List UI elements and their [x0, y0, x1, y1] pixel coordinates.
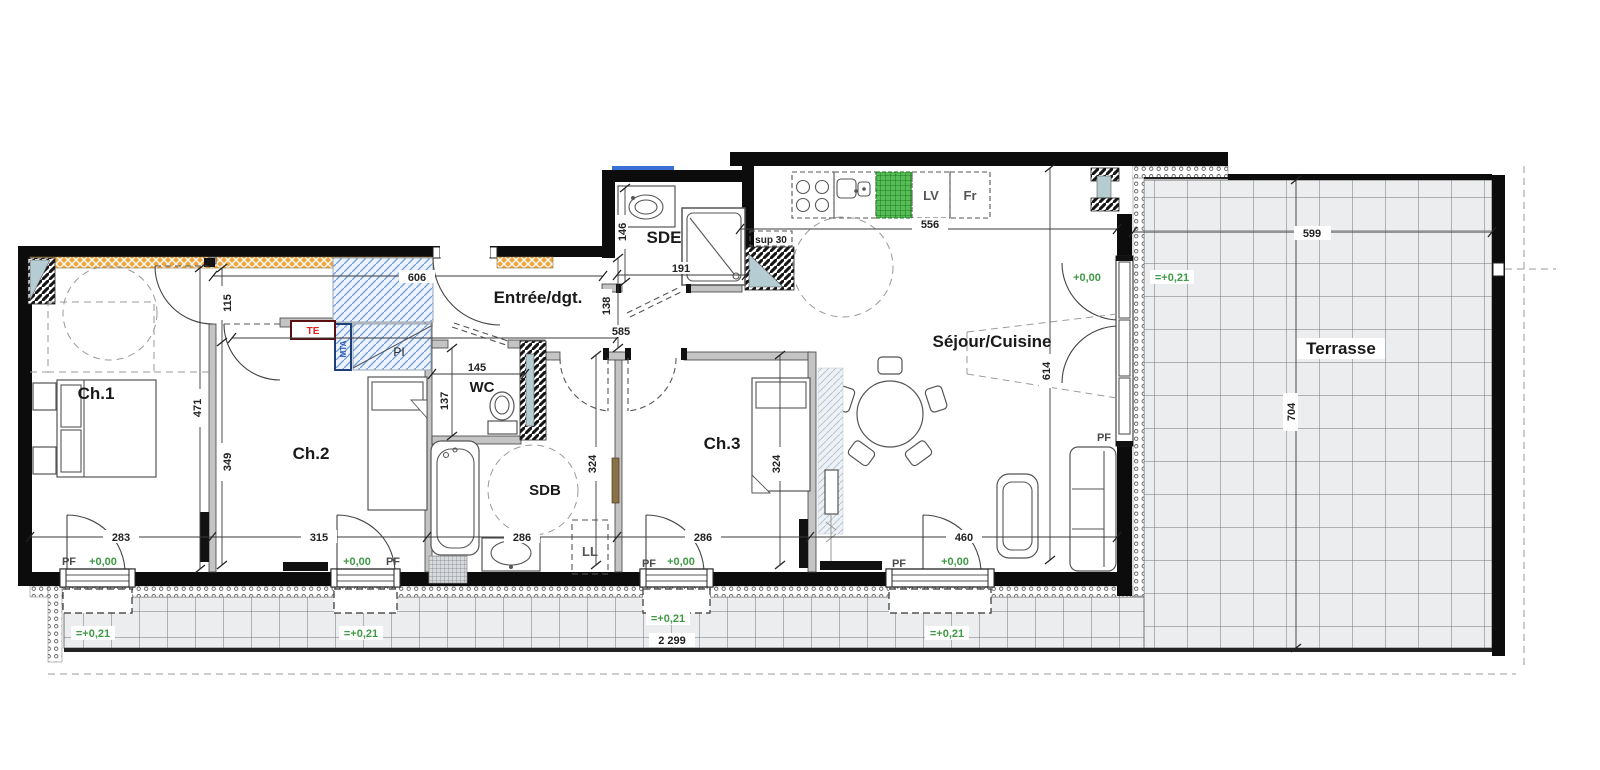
insulation-dots-right-column [1133, 178, 1144, 596]
sejour-wall-strip [818, 368, 843, 562]
pf-ch1: PF [62, 556, 76, 568]
entry-door-jamb-right [490, 247, 497, 258]
corner-window-detail-topleft [28, 258, 55, 304]
technical-shaft [520, 341, 546, 440]
window-ch3 [640, 569, 713, 613]
dim-ch2-width: 315 [310, 532, 328, 544]
level-terrace-door: +0,00 [1073, 272, 1101, 284]
level-ch1: +0,00 [89, 556, 117, 568]
floor-plan-page: Ch.1 Ch.2 Ch.3 WC SDB SDE Entrée/dgt. Sé… [0, 0, 1600, 770]
kitchen-green-unit [876, 172, 912, 218]
dining-table [832, 357, 948, 467]
room-label-sejour: Séjour/Cuisine [932, 332, 1051, 351]
dim-ch3-depth: 324 [771, 454, 783, 473]
dim-sejour-depth: 614 [1041, 361, 1053, 380]
terrace-access-box [1493, 263, 1504, 276]
closet-pi [353, 324, 431, 370]
level-sejour: +0,00 [941, 556, 969, 568]
dim-wc-width: 145 [468, 362, 486, 374]
level-terrace: =+0,21 [1155, 272, 1189, 284]
label-pi: PI [393, 345, 404, 359]
dim-sejour-width: 460 [955, 532, 973, 544]
entry-door-opening [440, 246, 490, 257]
pf-ch2: PF [386, 556, 400, 568]
label-lv: LV [923, 188, 939, 203]
pf-ch3: PF [642, 558, 656, 570]
dim-terrace-width: 599 [1303, 228, 1321, 240]
dim-hall-width: 115 [222, 294, 234, 312]
level-ch2: +0,00 [343, 556, 371, 568]
pf-terrace-door: PF [1097, 432, 1111, 444]
level-balcony-4: =+0,21 [930, 628, 964, 640]
room-label-entree: Entrée/dgt. [494, 288, 583, 307]
level-balcony-1: =+0,21 [76, 628, 110, 640]
insulation-dots-left-column [48, 586, 62, 662]
dim-entry-depth: 138 [601, 297, 613, 315]
room-label-sdb: SDB [529, 482, 561, 499]
dim-hall-length: 606 [408, 272, 426, 284]
pf-sejour: PF [892, 558, 906, 570]
window-ch1 [60, 569, 135, 613]
dim-ch3-width: 286 [694, 532, 712, 544]
kitchen-hob [792, 172, 834, 218]
terrace-tiles [1144, 180, 1492, 648]
level-balcony-2: =+0,21 [344, 628, 378, 640]
entry-door-jamb-left [433, 247, 440, 258]
door-jambs [603, 284, 691, 360]
room-label-ch3: Ch.3 [704, 434, 741, 453]
label-sup30: sup 30 [755, 235, 787, 246]
room-label-wc: WC [470, 379, 495, 396]
room-label-ch2: Ch.2 [293, 444, 330, 463]
label-mta: MTA [339, 340, 348, 357]
kitchen-sink-unit [834, 172, 876, 218]
window-detail-right-wall [1091, 166, 1132, 214]
dim-sde-length: 191 [672, 263, 690, 275]
room-label-ch1: Ch.1 [78, 384, 115, 403]
dim-sde-width-v: 146 [617, 223, 629, 241]
wc-toilet [488, 392, 517, 434]
room-label-sde: SDE [647, 228, 682, 247]
dim-sdb-depth: 324 [587, 454, 599, 473]
label-section-b: B [207, 259, 213, 268]
label-te: TE [307, 326, 320, 337]
floor-plan-canvas: Ch.1 Ch.2 Ch.3 WC SDB SDE Entrée/dgt. Sé… [0, 0, 1600, 770]
insulation-dots-terrace-top [1132, 166, 1228, 178]
dim-ch1-width: 283 [112, 532, 130, 544]
sofa [1070, 447, 1116, 571]
dim-terrace-depth: 704 [1286, 402, 1298, 421]
dim-total-width: 2 299 [658, 635, 686, 647]
room-label-terrasse: Terrasse [1306, 339, 1376, 358]
dim-wc-depth: 137 [439, 392, 451, 410]
dim-ch1-depth: 471 [192, 399, 204, 417]
sdb-mat [429, 556, 467, 583]
dim-sdb-width: 286 [513, 532, 531, 544]
dim-ch1-inner: 349 [222, 453, 234, 471]
terrace-top-edge [1228, 174, 1492, 180]
label-fr: Fr [964, 188, 977, 203]
sde-blue-lintel [612, 166, 674, 170]
level-ch3: +0,00 [667, 556, 695, 568]
dim-kitchen-length: 556 [921, 219, 939, 231]
level-balcony-3: =+0,21 [651, 613, 685, 625]
ch2-bed [368, 377, 427, 510]
window-sejour [886, 569, 994, 613]
lounge-chair [997, 474, 1038, 558]
french-door-terrace [1116, 256, 1133, 446]
ch1-dashed-zone [48, 302, 154, 372]
balcony-railing [64, 648, 1505, 652]
wall-detail-sde-kitchen [745, 247, 794, 290]
terrace-right-wall [1492, 175, 1505, 656]
window-ch2 [331, 569, 400, 613]
dim-hall-to-sdb: 585 [612, 326, 630, 338]
closet-hatched-upper [333, 258, 433, 322]
label-ll: LL [582, 544, 598, 559]
sdb-bathtub [431, 441, 479, 555]
insulation-band-right [497, 257, 553, 268]
sdb-sliding-door [612, 458, 619, 503]
